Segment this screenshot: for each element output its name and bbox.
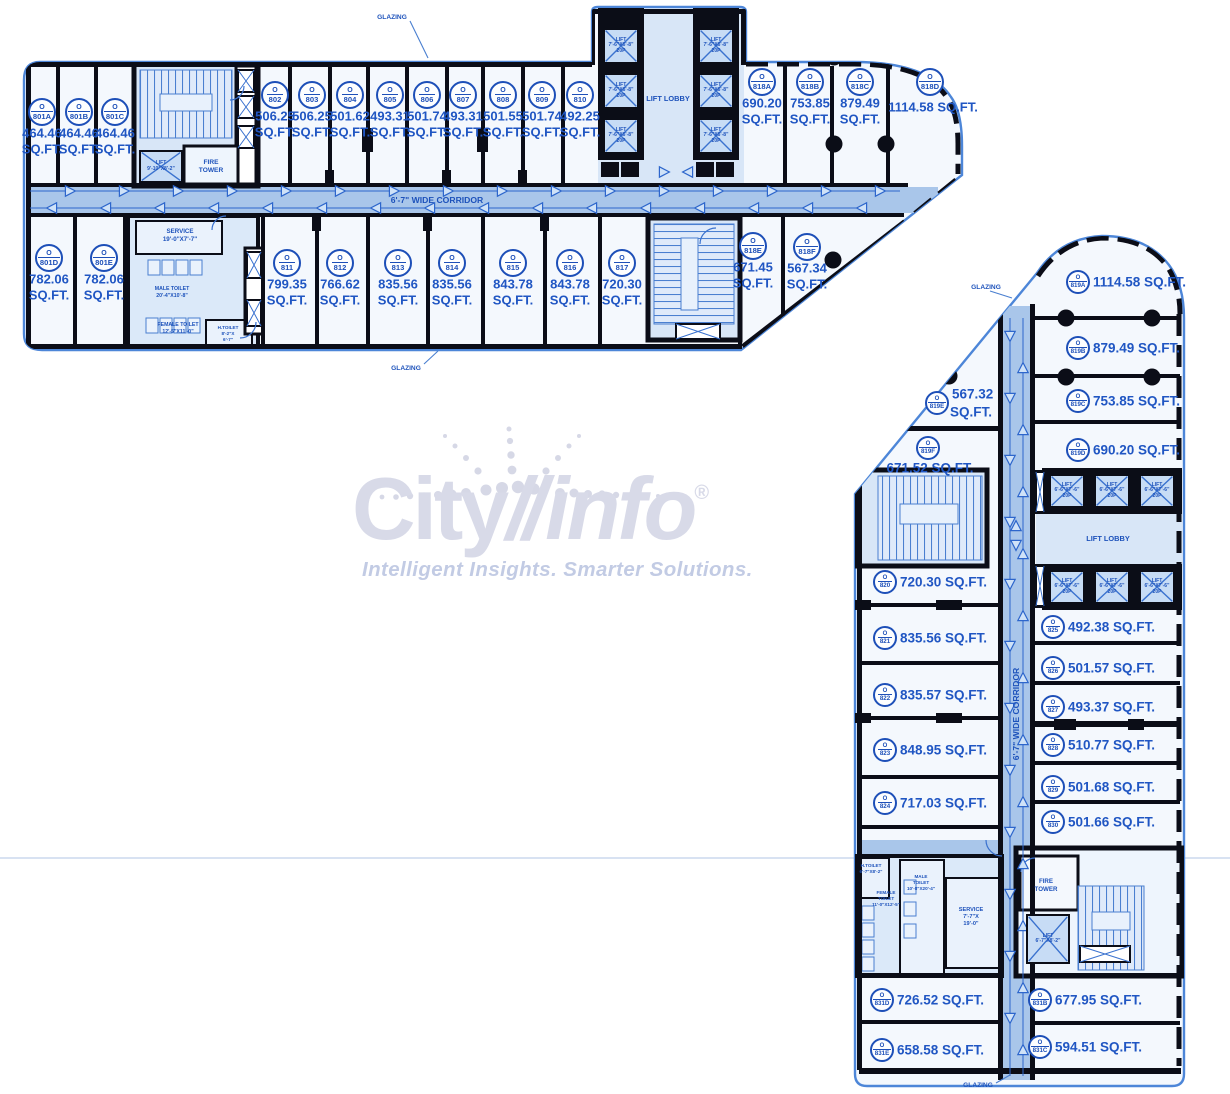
wall [857,973,1002,977]
wall [857,825,1002,829]
wall [857,468,862,1070]
wall [1034,641,1180,645]
wall [540,216,549,231]
service-label-east: SERVICE [959,907,984,913]
wall [366,216,370,346]
svg-text:TOWER: TOWER [1035,886,1058,893]
service-toilet-block-east [857,856,1002,976]
wall [696,162,714,177]
wall [1034,681,1180,685]
floor-plan-drawing: 6'-7" WIDE CORRIDOR LIFT LOBBY FIRE TOWE… [0,0,1230,1094]
svg-text:19'-0"X7'-7": 19'-0"X7'-7" [163,236,197,243]
wall [855,600,871,610]
glazing-label-east-top: GLAZING [971,284,1001,291]
wall [328,66,332,185]
corridor-band-east [859,840,1002,856]
female-toilet-label-east: FEMALE [877,890,896,895]
wall [543,216,547,346]
column-dot [826,136,843,153]
wall [857,603,1002,607]
svg-text:8'-2"X: 8'-2"X [222,331,236,336]
wall [1034,800,1180,804]
wall [315,216,319,346]
wall [312,216,321,231]
wall [886,66,890,185]
column-dot [941,368,958,385]
column-dot [826,49,843,66]
wall [998,310,1003,1080]
wall [561,66,565,185]
watermark-starburst [366,427,660,500]
male-toilet-label-north: MALE TOILET [155,286,190,292]
wall [781,216,785,316]
wall [1042,468,1182,514]
wall [28,183,908,187]
column-dot [1058,369,1075,386]
floor-plan-page: 6'-7" WIDE CORRIDOR LIFT LOBBY FIRE TOWE… [0,0,1230,1094]
wall [518,170,527,185]
wall [521,66,525,185]
wall [693,8,739,160]
wall [366,66,370,185]
wall [405,66,409,185]
wall [783,66,787,185]
wall [738,216,742,346]
svg-text:10'-8"X20'-4": 10'-8"X20'-4" [907,886,935,891]
corridor-label-east: 6'-7" WIDE CORRIDOR [1011,667,1021,760]
glazing-label-north-top: GLAZING [377,14,407,21]
svg-text:7'-7"X: 7'-7"X [963,914,979,920]
wall [28,213,904,217]
male-toilet-label-east: MALE [914,874,927,879]
wall [288,66,292,185]
wall [362,128,373,152]
wall [906,426,1002,431]
wall [598,216,602,346]
wall [741,9,746,65]
column-dot [1058,310,1075,327]
wall [601,162,619,177]
wall [859,1068,1181,1074]
wall [830,66,834,185]
wall [590,9,595,65]
wall [481,216,485,346]
stair-block-ns [648,218,740,340]
svg-text:11'-0"X12'-5": 11'-0"X12'-5" [872,902,900,907]
column-dot [1144,310,1161,327]
fire-tower-label-north: FIRE [203,159,219,166]
wall [30,62,592,67]
wall [716,162,734,177]
wall [621,162,639,177]
wall [855,713,871,723]
svg-text:6'-7"X8'-2": 6'-7"X8'-2" [860,869,883,874]
wall [857,1020,1002,1024]
svg-text:12'-5"X11'-0": 12'-5"X11'-0" [162,329,194,335]
wall [26,64,31,348]
wall [1128,719,1144,730]
service-label-north: SERVICE [166,228,193,235]
wall [423,216,432,231]
wall [445,66,449,185]
wall [426,216,430,346]
wall [1042,564,1182,610]
wall [94,66,98,185]
wall [73,216,77,346]
wall [30,344,742,349]
lift-lobby-label-east: LIFT LOBBY [1086,534,1130,543]
svg-text:19'-0": 19'-0" [963,921,979,927]
fire-tower-label-east: FIRE [1039,878,1053,885]
wall [325,170,334,185]
female-toilet-label-north: FEMALE TOILET [157,322,199,328]
svg-text:TOILET: TOILET [878,896,894,901]
wall [936,600,962,610]
column-dot [1144,369,1161,386]
wall [477,128,488,152]
wall [598,8,644,160]
wall [1034,420,1180,424]
h-toilet-label-north: H.TOILET [218,325,239,330]
wall [1054,719,1076,730]
lift-lobby-label-north: LIFT LOBBY [646,94,690,103]
wall [56,66,60,185]
svg-text:20'-4"X10'-8": 20'-4"X10'-8" [156,293,188,299]
wing-north: 6'-7" WIDE CORRIDOR LIFT LOBBY FIRE TOWE… [24,7,962,372]
wall [481,66,485,185]
wall [1034,973,1180,977]
wall [442,170,451,185]
wall [1034,1021,1180,1025]
glazing-label-north-bottom: GLAZING [391,365,421,372]
corridor-label-north: 6'-7" WIDE CORRIDOR [391,195,484,205]
svg-text:6'-7": 6'-7" [223,337,233,342]
wall [857,775,1002,779]
svg-text:TOILET: TOILET [913,880,929,885]
h-toilet-label-east: H.TOILET [861,863,882,868]
wall [1034,761,1180,765]
wall [857,661,1002,665]
stair-block-east [855,470,987,566]
wall [857,716,1002,720]
wall [936,713,962,723]
glazing-label-east-bottom: GLAZING [963,1082,993,1089]
column-dot [825,252,842,269]
wing-east: 6'-7" WIDE CORRIDOR LIFT LOBBY FIRE TOWE… [855,236,1184,1089]
wall [123,216,127,346]
svg-text:TOWER: TOWER [199,167,224,174]
column-dot [878,136,895,153]
